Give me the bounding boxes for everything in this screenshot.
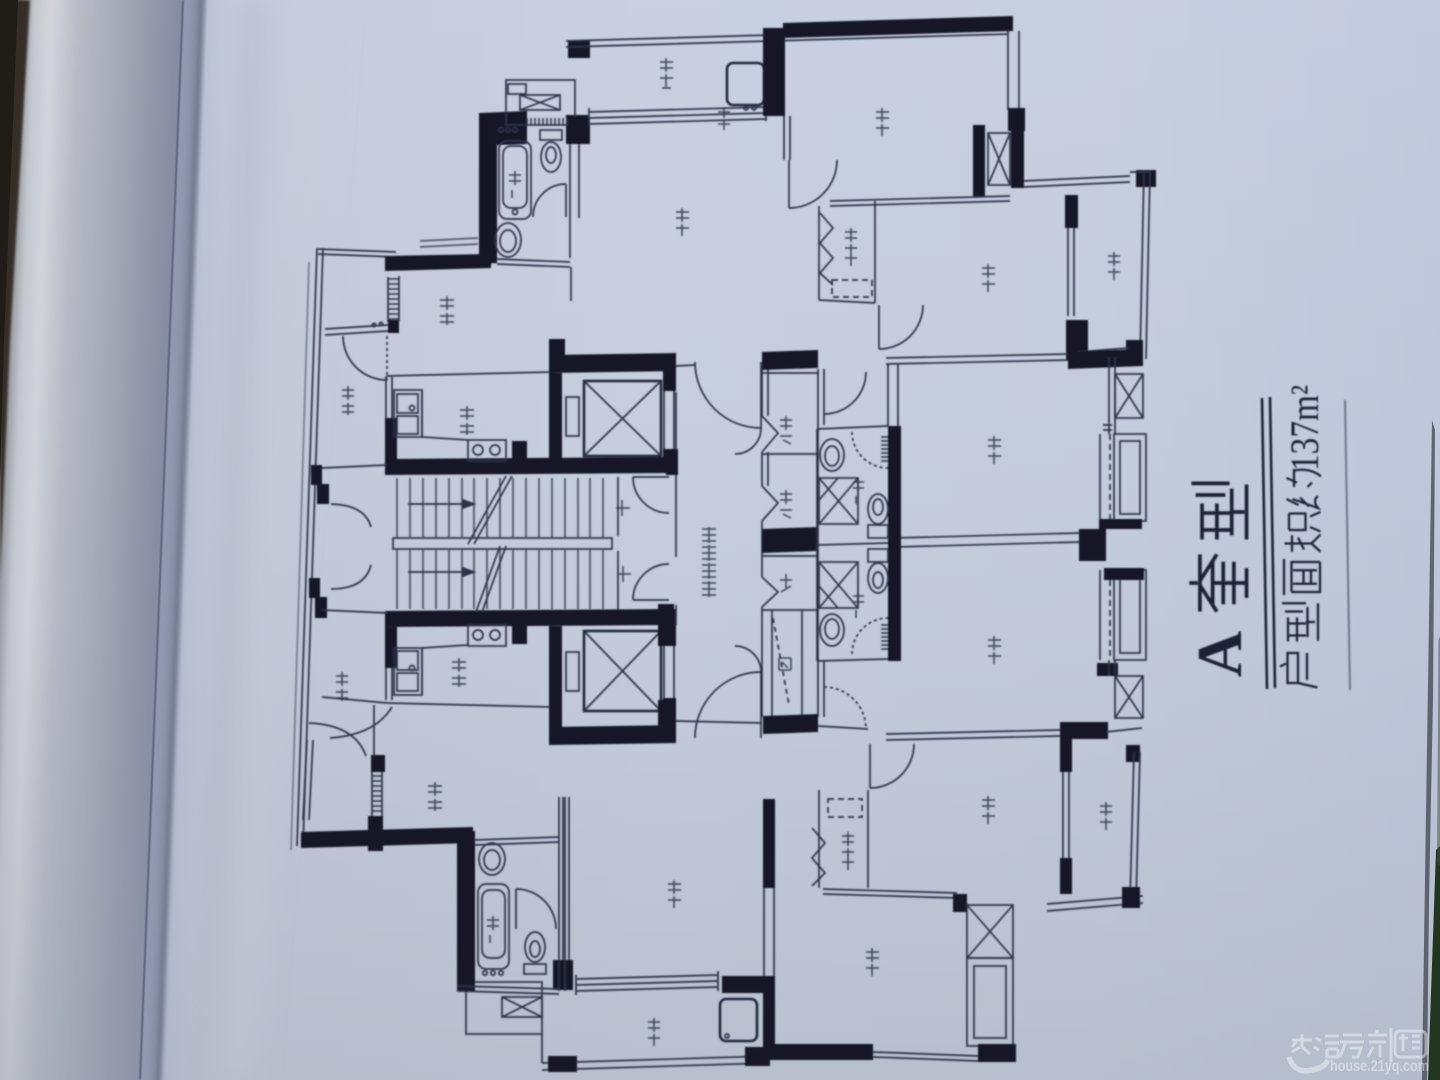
svg-text:137m²: 137m² [1282,385,1327,471]
svg-text:A: A [1184,631,1255,677]
svg-text:house.21yq.com: house.21yq.com [1330,1058,1429,1075]
